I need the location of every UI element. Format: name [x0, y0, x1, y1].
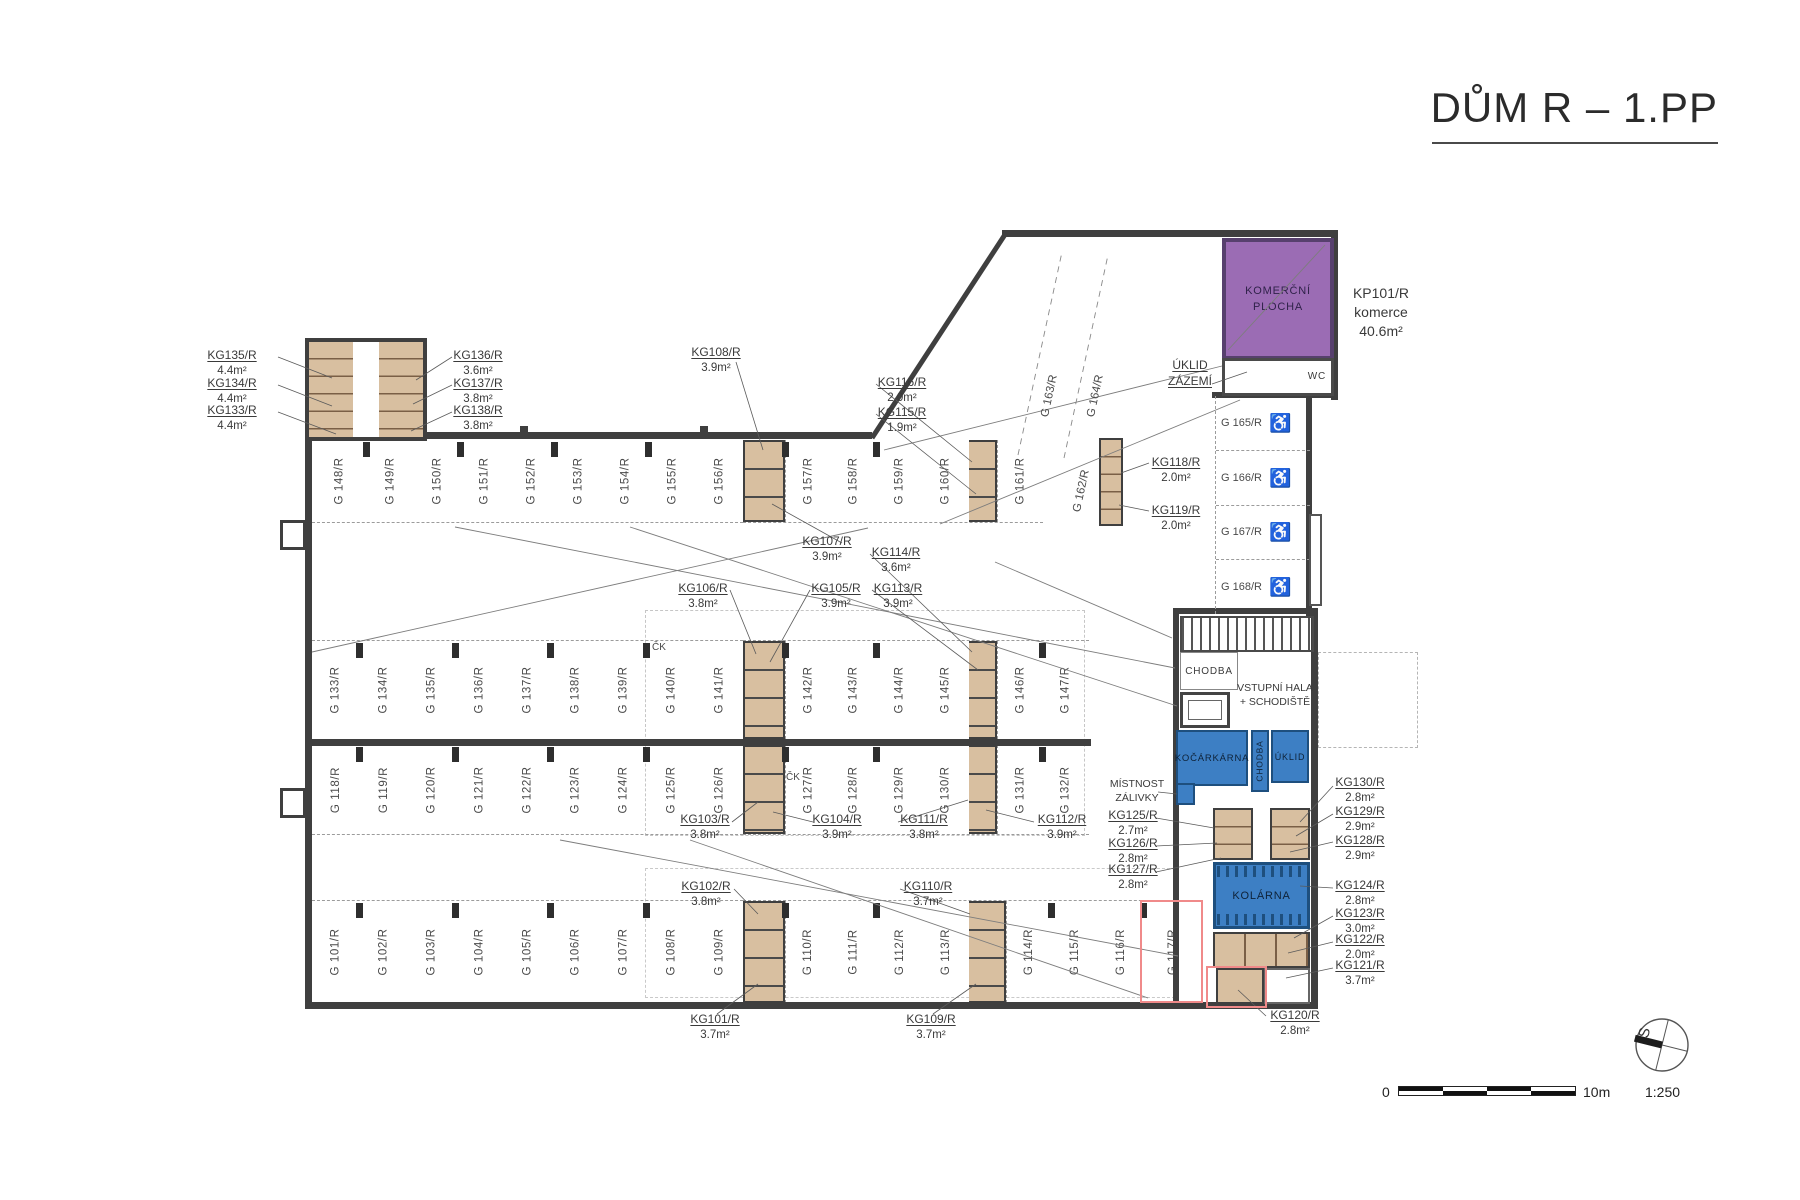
- page-title: DŮM R – 1.PP: [1430, 84, 1718, 132]
- parking-stall: G 114/R: [1006, 901, 1052, 1003]
- storage-cells-right: [379, 342, 423, 437]
- storage-corridor: [353, 342, 379, 437]
- stall-label: G 135/R: [426, 666, 438, 713]
- scale-max: 10m: [1583, 1084, 1610, 1100]
- storage-cells-kg125-127: [1213, 808, 1253, 860]
- parking-stall: G 150/R: [414, 440, 461, 522]
- parking-stall: G 111/R: [831, 901, 877, 1003]
- commercial-type: komerce: [1336, 303, 1426, 322]
- stall-label: G 114/R: [1024, 929, 1036, 975]
- parking-stall: G 161/R: [997, 440, 1043, 522]
- stall-label: G 130/R: [940, 766, 952, 813]
- elevator: [1180, 692, 1230, 728]
- stall-label: G 112/R: [894, 929, 906, 975]
- parking-row-1-right: G 157/R G 158/R G 159/R G 160/R G 161/R: [743, 440, 1043, 523]
- stall-label: G 103/R: [426, 928, 438, 975]
- storage-block-kg118-119: [1099, 438, 1123, 526]
- stall-label: G 131/R: [1015, 766, 1027, 813]
- wall-recess: [280, 788, 306, 818]
- parking-stall: G 140/R: [647, 641, 695, 739]
- parking-stall: G 149/R: [367, 440, 414, 522]
- parking-stall: G 131/R: [997, 745, 1043, 834]
- storage-lockers: [969, 440, 997, 522]
- stall-label: G 106/R: [569, 928, 581, 975]
- stall-label: G 107/R: [617, 928, 629, 975]
- parking-stall: G 104/R: [456, 901, 504, 1003]
- scale-bar: [1398, 1086, 1576, 1096]
- wall: [305, 432, 312, 1008]
- room-label: PLOCHA: [1253, 299, 1303, 316]
- stall-label: G 123/R: [569, 766, 581, 813]
- parking-stall: G 147/R: [1043, 641, 1089, 739]
- parking-stall: G 145/R: [923, 641, 969, 739]
- stall-label: G 124/R: [617, 766, 629, 813]
- stall-label: G 118/R: [330, 766, 342, 812]
- room-utility: [1264, 968, 1310, 1004]
- wall-recess: [280, 520, 306, 550]
- storage-annotation-kg128: KG128/R2.9m²: [1335, 833, 1384, 864]
- parking-stall: G 113/R: [923, 901, 969, 1003]
- storage-cells-left: [309, 342, 353, 437]
- wall: [1002, 230, 1338, 237]
- stall-label: G 153/R: [572, 457, 584, 504]
- wall: [1311, 614, 1318, 1009]
- parking-stall: G 109/R: [695, 901, 743, 1003]
- room-label: CHODBA: [1185, 666, 1233, 677]
- stall-label: G 156/R: [713, 457, 725, 504]
- storage-annotation-kg113: KG113/R3.9m²: [874, 581, 922, 612]
- stall-label: G 152/R: [525, 457, 537, 504]
- stall-label: G 101/R: [330, 928, 342, 975]
- parking-stall: G 121/R: [456, 745, 504, 834]
- stall-label: G 104/R: [474, 928, 486, 975]
- parking-stall-accessible: G 168/R ♿: [1216, 560, 1310, 614]
- north-compass: S: [1629, 1013, 1694, 1077]
- ck-label: ČK: [786, 772, 800, 783]
- scale-ratio: 1:250: [1645, 1084, 1680, 1100]
- parking-stall: G 160/R: [923, 440, 969, 522]
- stall-label: G 126/R: [713, 766, 725, 813]
- stall-label: G 139/R: [617, 666, 629, 713]
- storage-lockers: [743, 745, 785, 834]
- wheelchair-icon: ♿: [1269, 469, 1291, 487]
- parking-stall: G 157/R: [785, 440, 831, 522]
- storage-annotation-kg119: KG119/R2.0m²: [1152, 503, 1200, 534]
- stall-label: G 119/R: [378, 766, 390, 812]
- stall-label: G 113/R: [940, 929, 952, 975]
- stall-label: G 142/R: [803, 666, 815, 713]
- parking-stall: G 107/R: [599, 901, 647, 1003]
- room-vstupni-hala-label: VSTUPNÍ HALA + SCHODIŠTĚ: [1237, 682, 1313, 709]
- stall-label: G 110/R: [803, 929, 815, 975]
- stall-label: G 146/R: [1015, 666, 1027, 713]
- parking-stall: G 142/R: [785, 641, 831, 739]
- stall-label: G 165/R: [1221, 417, 1262, 429]
- storage-annotation-kg124: KG124/R2.8m²: [1335, 878, 1384, 909]
- stall-label: G 150/R: [431, 457, 443, 504]
- room-label: KOLÁRNA: [1232, 890, 1290, 902]
- highlight-kg120: [1206, 966, 1267, 1008]
- storage-cells-kg128-130: [1270, 808, 1310, 860]
- room-label: ÚKLID: [1168, 358, 1212, 374]
- storage-block-kg133-138: [305, 338, 427, 441]
- stall-label: G 137/R: [522, 666, 534, 713]
- stall-label: G 159/R: [894, 457, 906, 504]
- stall-label: G 138/R: [569, 666, 581, 713]
- storage-annotation-kg121: KG121/R3.7m²: [1335, 958, 1384, 989]
- room-kocarkarna: KOČÁRKÁRNA: [1176, 730, 1248, 786]
- parking-row-2-left: G 133/R G 134/R G 135/R G 136/R G 137/R …: [312, 640, 743, 739]
- parking-stall: G 146/R: [997, 641, 1043, 739]
- commercial-id: KP101/R: [1336, 284, 1426, 303]
- parking-stall: G 101/R: [312, 901, 360, 1003]
- elevator-car: [1188, 700, 1222, 720]
- room-label: VSTUPNÍ HALA: [1237, 682, 1313, 696]
- stall-label: G 158/R: [848, 457, 860, 504]
- wall: [305, 1002, 1318, 1009]
- storage-annotation-kg134: KG134/R4.4m²: [207, 376, 256, 407]
- stairs: [1180, 616, 1314, 652]
- parking-stall: G 156/R: [696, 440, 743, 522]
- storage-annotation-kg118: KG118/R2.0m²: [1152, 455, 1200, 486]
- stall-label: G 134/R: [378, 666, 390, 713]
- bike-rack: [1217, 866, 1306, 877]
- parking-stall-accessible: G 167/R ♿: [1216, 506, 1310, 561]
- parking-stall: G 137/R: [504, 641, 552, 739]
- stall-label: G 167/R: [1221, 526, 1262, 538]
- stall-label: G 160/R: [940, 457, 952, 504]
- room-uklid: ÚKLID: [1271, 730, 1309, 783]
- parking-stall: G 138/R: [551, 641, 599, 739]
- north-label: S: [1635, 1026, 1654, 1040]
- stall-label: G 145/R: [940, 666, 952, 713]
- parking-stall: G 158/R: [831, 440, 877, 522]
- storage-annotation-kg120: KG120/R2.8m²: [1270, 1008, 1319, 1039]
- parking-stall: G 108/R: [647, 901, 695, 1003]
- ck-label: ČK: [652, 642, 666, 653]
- parking-stall: G 110/R: [785, 901, 831, 1003]
- stall-label: G 148/R: [333, 457, 345, 504]
- parking-stall: G 139/R: [599, 641, 647, 739]
- stall-label: G 109/R: [713, 928, 725, 975]
- parking-stall: G 102/R: [360, 901, 408, 1003]
- parking-stall: G 119/R: [360, 745, 408, 834]
- room-wc: WC: [1222, 358, 1334, 396]
- storage-cells-kg121-123: [1213, 932, 1310, 968]
- stall-label: G 132/R: [1060, 766, 1072, 813]
- stall-label: G 163/R: [1039, 374, 1060, 418]
- storage-annotation-kg104: KG104/R3.9m²: [812, 812, 861, 843]
- storage-annotation-kg116: KG116/R2.0m²: [878, 375, 926, 406]
- parking-row-4-left: G 101/R G 102/R G 103/R G 104/R G 105/R …: [312, 900, 743, 1003]
- parking-stall: G 133/R: [312, 641, 360, 739]
- stall-label: G 143/R: [848, 666, 860, 713]
- wall: [309, 739, 1091, 746]
- storage-annotation-kg133: KG133/R4.4m²: [207, 403, 256, 434]
- stall-label: G 149/R: [384, 457, 396, 504]
- stall-label: G 141/R: [713, 666, 725, 713]
- storage-annotation-kg106: KG106/R3.8m²: [678, 581, 727, 612]
- stall-label: G 128/R: [848, 766, 860, 813]
- floor-plan: DŮM R – 1.PP KP101/R komerce 40.6m²: [0, 0, 1800, 1200]
- parking-stall: G 112/R: [877, 901, 923, 1003]
- room-label: WC: [1308, 371, 1326, 382]
- wheelchair-icon: ♿: [1269, 523, 1291, 541]
- stall-label: G 136/R: [474, 666, 486, 713]
- storage-annotation-kg125: KG125/R2.7m²: [1108, 808, 1157, 839]
- room-label: KOČÁRKÁRNA: [1175, 753, 1250, 764]
- stall-label: G 133/R: [330, 666, 342, 713]
- storage-annotation-kg115: KG115/R1.9m²: [878, 405, 926, 436]
- parking-stall-accessible: G 166/R ♿: [1216, 451, 1310, 506]
- parking-stall: G 143/R: [831, 641, 877, 739]
- stall-label: G 129/R: [894, 766, 906, 813]
- parking-stall: G 123/R: [551, 745, 599, 834]
- parking-stall: G 148/R: [312, 440, 367, 522]
- accessible-parking-column: G 165/R ♿ G 166/R ♿ G 167/R ♿ G 168/R ♿: [1215, 396, 1310, 614]
- stall-label: G 161/R: [1015, 457, 1027, 504]
- entry-porch-outline: [1318, 652, 1418, 748]
- stall-label: G 121/R: [474, 766, 486, 813]
- parking-stall: G 124/R: [599, 745, 647, 834]
- parking-stall: G 103/R: [408, 901, 456, 1003]
- stall-label: G 120/R: [426, 766, 438, 813]
- room-chodba: CHODBA: [1180, 652, 1238, 690]
- room-zalivka: [1176, 783, 1195, 805]
- storage-annotation-kg129: KG129/R2.9m²: [1335, 804, 1384, 835]
- room-label: ÚKLID: [1275, 752, 1306, 762]
- stall-label: G 166/R: [1221, 472, 1262, 484]
- parking-stall-accessible: G 165/R ♿: [1216, 396, 1310, 451]
- stall-label: G 147/R: [1060, 666, 1072, 713]
- storage-annotation-kg102: KG102/R3.8m²: [681, 879, 730, 910]
- parking-stall: G 159/R: [877, 440, 923, 522]
- room-label: + SCHODIŠTĚ: [1237, 696, 1313, 710]
- storage-lockers: [969, 745, 997, 834]
- parking-stall: G 153/R: [555, 440, 602, 522]
- storage-lockers: [743, 440, 785, 522]
- stall-label: G 108/R: [665, 928, 677, 975]
- parking-stall: G 154/R: [602, 440, 649, 522]
- column: [700, 426, 708, 439]
- stall-label: G 116/R: [1115, 929, 1127, 975]
- stall-label: G 168/R: [1221, 581, 1262, 593]
- stall-label: G 102/R: [378, 928, 390, 975]
- room-uklid-zazemi-label: ÚKLID ZÁZEMÍ: [1168, 358, 1212, 389]
- parking-stall: G 134/R: [360, 641, 408, 739]
- room-label: ZÁZEMÍ: [1168, 374, 1212, 390]
- storage-annotation-kg109: KG109/R3.7m²: [906, 1012, 955, 1043]
- storage-annotation-kg137: KG137/R3.8m²: [453, 376, 502, 407]
- parking-stall: G 118/R: [312, 745, 360, 834]
- storage-lockers: [743, 641, 785, 739]
- stall-label: G 105/R: [522, 928, 534, 975]
- stall-label: G 162/R: [1071, 469, 1092, 513]
- stall-label: G 111/R: [848, 929, 860, 974]
- room-label: CHODBA: [1255, 740, 1265, 781]
- parking-stall: G 155/R: [649, 440, 696, 522]
- stall-label: G 154/R: [619, 457, 631, 504]
- parking-stall: G 106/R: [551, 901, 599, 1003]
- storage-annotation-kg135: KG135/R4.4m²: [207, 348, 256, 379]
- stall-label: G 157/R: [803, 457, 815, 504]
- parking-row-4-right: G 110/R G 111/R G 112/R G 113/R G 114/R …: [743, 900, 1202, 1003]
- storage-annotation-kg101: KG101/R3.7m²: [690, 1012, 739, 1043]
- parking-row-3-left: G 118/R G 119/R G 120/R G 121/R G 122/R …: [312, 745, 743, 835]
- storage-annotation-kg111: KG111/R3.8m²: [900, 812, 948, 843]
- room-label: MÍSTNOST: [1110, 778, 1164, 792]
- storage-annotation-kg114: KG114/R3.6m²: [872, 545, 920, 576]
- storage-annotation-kg112: KG112/R3.9m²: [1038, 812, 1086, 843]
- wheelchair-icon: ♿: [1269, 578, 1291, 596]
- commercial-note: KP101/R komerce 40.6m²: [1336, 284, 1426, 341]
- parking-stall: G 151/R: [461, 440, 508, 522]
- storage-annotation-kg105: KG105/R3.9m²: [811, 581, 860, 612]
- stall-label: G 151/R: [478, 457, 490, 504]
- room-chodba-2: CHODBA: [1251, 730, 1269, 792]
- stall-label: G 164/R: [1085, 374, 1106, 418]
- room-komercni-plocha: KOMERČNÍ PLOCHA: [1222, 238, 1334, 360]
- scale-bar-bottom: [1399, 1091, 1575, 1095]
- stall-label: G 140/R: [665, 666, 677, 713]
- parking-stall: G 152/R: [508, 440, 555, 522]
- parking-stall: G 135/R: [408, 641, 456, 739]
- stall-label: G 115/R: [1069, 929, 1081, 975]
- commercial-area: 40.6m²: [1336, 322, 1426, 341]
- parking-stall: G 120/R: [408, 745, 456, 834]
- parking-row-1-left: G 148/R G 149/R G 150/R G 151/R G 152/R …: [312, 440, 743, 523]
- storage-annotation-kg127: KG127/R2.8m²: [1108, 862, 1157, 893]
- scale-zero: 0: [1382, 1084, 1390, 1100]
- storage-lockers: [743, 901, 785, 1003]
- storage-annotation-kg103: KG103/R3.8m²: [680, 812, 729, 843]
- storage-annotation-kg138: KG138/R3.8m²: [453, 403, 502, 434]
- wheelchair-icon: ♿: [1269, 414, 1291, 432]
- storage-annotation-kg108: KG108/R3.9m²: [691, 345, 740, 376]
- highlight-g117: [1140, 900, 1203, 1003]
- parking-stall: G 141/R: [695, 641, 743, 739]
- column: [520, 426, 528, 439]
- storage-annotation-kg110: KG110/R3.7m²: [904, 879, 952, 910]
- storage-lockers: [969, 901, 1006, 1003]
- stall-label: G 125/R: [665, 766, 677, 813]
- stall-label: G 155/R: [666, 457, 678, 504]
- parking-stall: G 122/R: [504, 745, 552, 834]
- parking-stall: G 144/R: [877, 641, 923, 739]
- storage-annotation-kg130: KG130/R2.8m²: [1335, 775, 1384, 806]
- parking-row-2-right: G 142/R G 143/R G 144/R G 145/R G 146/R …: [743, 640, 1089, 739]
- shaft: [1309, 514, 1322, 606]
- room-label: ZÁLIVKY: [1110, 792, 1164, 806]
- stall-label: G 127/R: [803, 766, 815, 813]
- room-label: KOMERČNÍ: [1245, 283, 1311, 300]
- parking-stall: G 115/R: [1052, 901, 1098, 1003]
- room-mistnost-zalivky-label: MÍSTNOST ZÁLIVKY: [1110, 778, 1164, 805]
- title-underline: [1432, 142, 1718, 144]
- parking-stall: G 136/R: [456, 641, 504, 739]
- parking-stall: G 116/R: [1098, 901, 1144, 1003]
- storage-lockers: [969, 641, 997, 739]
- bike-rack: [1217, 914, 1306, 925]
- storage-annotation-kg136: KG136/R3.6m²: [453, 348, 502, 379]
- stall-label: G 122/R: [522, 766, 534, 813]
- storage-annotation-kg107: KG107/R3.9m²: [802, 534, 851, 565]
- stall-label: G 144/R: [894, 666, 906, 713]
- parking-stall: G 105/R: [504, 901, 552, 1003]
